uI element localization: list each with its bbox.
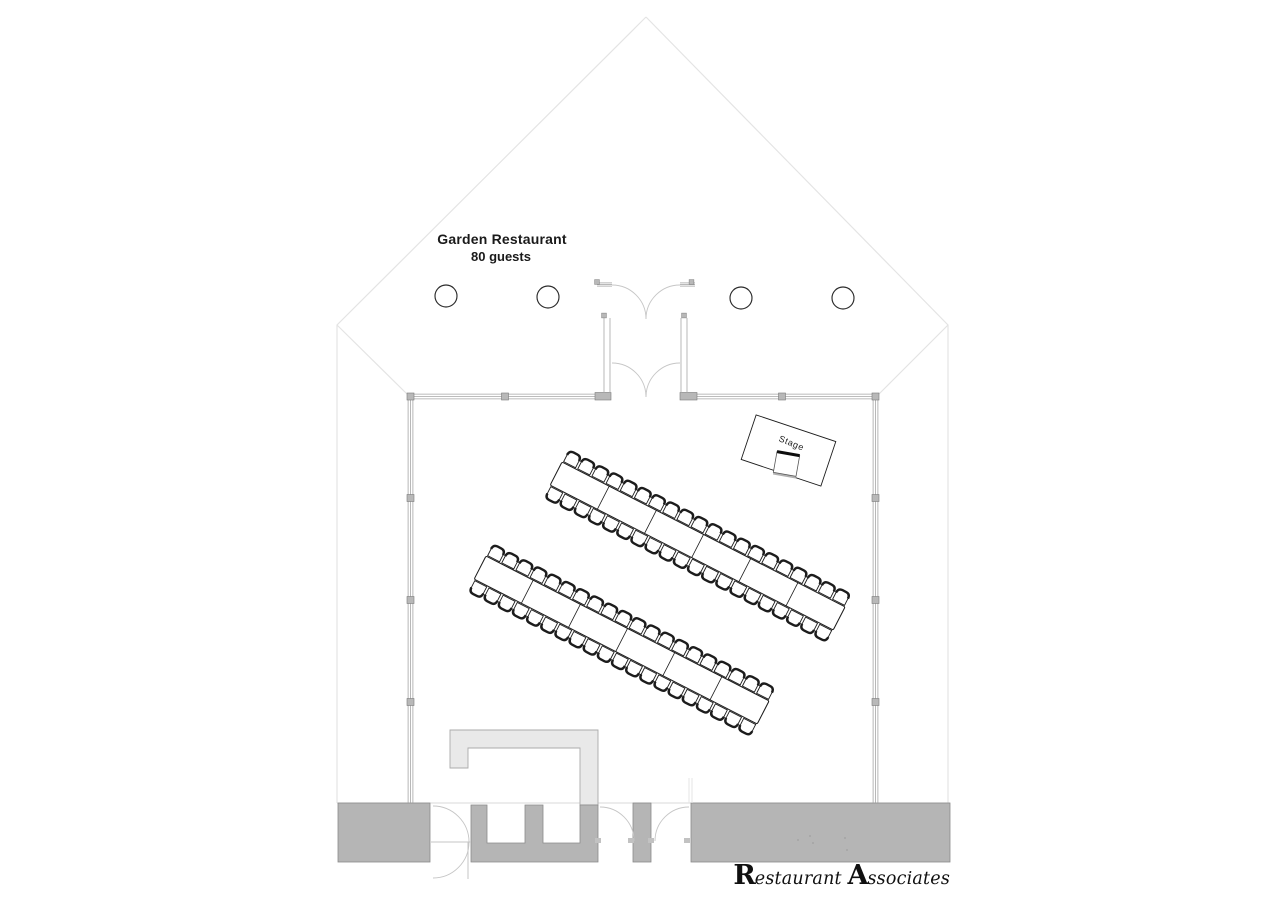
entrance-vestibule bbox=[595, 280, 695, 397]
door-swing-arc bbox=[646, 363, 680, 397]
door-swing-arc bbox=[612, 285, 646, 319]
floor-plan-canvas: Stage Garden Restaurant 80 guests Restau… bbox=[0, 0, 1280, 905]
double-acting-door-arc bbox=[433, 806, 469, 842]
stage bbox=[741, 415, 836, 486]
podium-group bbox=[773, 452, 800, 478]
service-door-arc bbox=[600, 807, 634, 841]
door-jamb-block bbox=[595, 393, 611, 401]
wall-post bbox=[779, 393, 786, 400]
service-door-jamb bbox=[684, 838, 690, 843]
service-area bbox=[337, 730, 950, 879]
wall-post bbox=[502, 393, 509, 400]
door-swing-arc bbox=[612, 363, 646, 397]
column-circle bbox=[435, 285, 457, 307]
wall-post bbox=[407, 699, 414, 706]
wall-marker-dot bbox=[797, 839, 799, 841]
door-swing-arc bbox=[646, 285, 680, 319]
restaurant-associates-logo: Restaurant Associates bbox=[733, 860, 950, 891]
vestibule-jamb-square bbox=[682, 313, 687, 318]
logo-cap-a: A bbox=[848, 860, 868, 891]
wall-marker-dot bbox=[844, 837, 846, 839]
bar-counter bbox=[450, 730, 598, 805]
column-circle bbox=[730, 287, 752, 309]
wall-post bbox=[407, 495, 414, 502]
door-jamb-block bbox=[680, 393, 697, 401]
service-door-arc bbox=[655, 807, 689, 841]
wall-post bbox=[407, 597, 414, 604]
floor-plan-drawing: Stage bbox=[0, 0, 1280, 905]
solid-wall-block bbox=[691, 803, 950, 862]
garden-outline-right-diagonal bbox=[878, 325, 948, 395]
banquet-tables bbox=[468, 450, 851, 736]
garden-outline-left-diagonal bbox=[337, 325, 408, 395]
vestibule-jamb-square bbox=[595, 280, 600, 285]
wall-post bbox=[872, 597, 879, 604]
wall-marker-dot bbox=[812, 842, 814, 844]
wall-post bbox=[872, 699, 879, 706]
solid-wall-block bbox=[338, 803, 430, 862]
wall-marker-dot bbox=[809, 835, 811, 837]
service-door-jamb bbox=[628, 838, 634, 843]
column-circle bbox=[832, 287, 854, 309]
logo-cap-r: R bbox=[733, 860, 754, 891]
column-circle bbox=[537, 286, 559, 308]
garden-outline-left bbox=[337, 17, 646, 803]
columns bbox=[435, 285, 854, 309]
vestibule-jamb-square bbox=[602, 313, 607, 318]
wall-post bbox=[872, 393, 879, 400]
kitchen-wall-block bbox=[471, 805, 598, 862]
logo-word-restaurant: estaurant bbox=[755, 869, 848, 889]
double-acting-door-arc bbox=[433, 842, 469, 878]
wall-marker-dot bbox=[846, 849, 848, 851]
vestibule-jamb-square bbox=[689, 280, 694, 285]
service-door-jamb bbox=[648, 838, 654, 843]
logo-word-associates: ssociates bbox=[868, 869, 951, 889]
solid-wall-block bbox=[633, 803, 651, 862]
wall-post bbox=[407, 393, 414, 400]
garden-outline bbox=[337, 17, 948, 803]
wall-post bbox=[872, 495, 879, 502]
service-door-jamb bbox=[595, 838, 601, 843]
